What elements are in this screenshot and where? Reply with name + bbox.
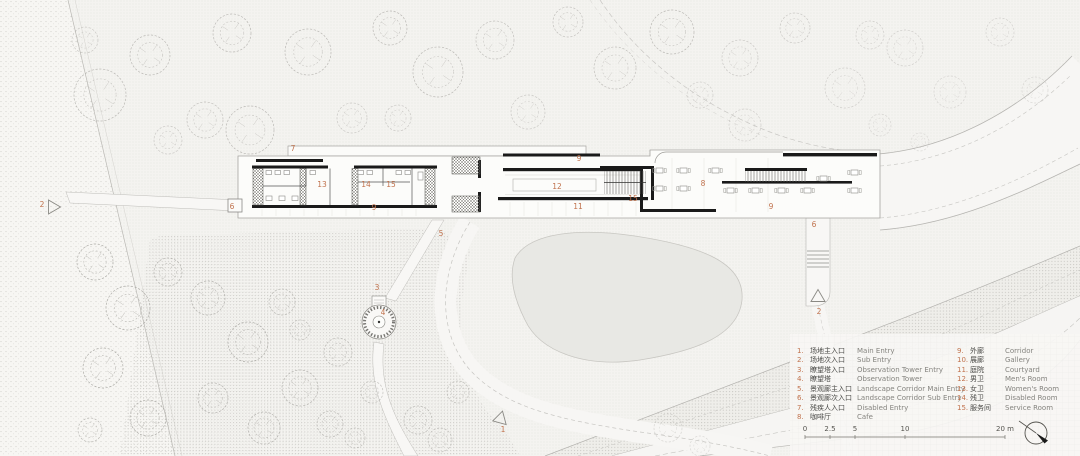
cafe-table <box>724 188 737 193</box>
cafe-table <box>801 188 814 193</box>
legend-zh: 景观廊次入口 <box>810 394 857 403</box>
legend-item: 8.咖啡厅Cafe <box>797 413 957 422</box>
legend-zh: 瞭望塔 <box>810 375 857 384</box>
legend-en: Gallery <box>1005 356 1030 365</box>
legend-zh: 男卫 <box>970 375 1005 384</box>
legend-en: Women's Room <box>1005 385 1059 394</box>
cafe-table <box>653 168 666 173</box>
legend-zh: 瞭望塔入口 <box>810 366 857 375</box>
cafe-table <box>749 188 762 193</box>
legend-zh: 女卫 <box>970 385 1005 394</box>
plan-number-label: 14 <box>361 180 371 189</box>
legend-en: Observation Tower <box>857 375 922 384</box>
legend-zh: 展廊 <box>970 356 1005 365</box>
legend-no: 13. <box>957 385 970 394</box>
plan-number-label: 12 <box>552 182 562 191</box>
plan-number-label: 8 <box>701 179 706 188</box>
plan-number-label: 15 <box>386 180 396 189</box>
plan-number-label: 1 <box>501 425 506 434</box>
legend-en: Courtyard <box>1005 366 1040 375</box>
cafe-table <box>848 170 861 175</box>
plan-number-label: 9 <box>372 203 377 212</box>
scale-label: 10 <box>901 425 910 433</box>
legend-en: Corridor <box>1005 347 1033 356</box>
legend-en: Sub Entry <box>857 356 891 365</box>
legend-column-right: 9.外廊Corridor10.展廊Gallery11.庭院Courtyard12… <box>957 347 1059 423</box>
legend-zh: 残疾人入口 <box>810 404 857 413</box>
legend-item: 4.瞭望塔Observation Tower <box>797 375 957 384</box>
tower-center <box>378 321 380 323</box>
cafe-table <box>775 188 788 193</box>
legend-zh: 景观廊主入口 <box>810 385 857 394</box>
legend-item: 7.残疾人入口Disabled Entry <box>797 404 957 413</box>
legend-column-left: 1.场地主入口Main Entry2.场地次入口Sub Entry3.瞭望塔入口… <box>797 347 957 423</box>
scale-label: 5 <box>853 425 857 433</box>
legend-no: 12. <box>957 375 970 384</box>
plan-number-label: 15 <box>628 194 638 203</box>
legend-en: Observation Tower Entry <box>857 366 943 375</box>
legend-no: 3. <box>797 366 810 375</box>
legend-en: Landscape Corridor Sub Entry <box>857 394 962 403</box>
legend-zh: 庭院 <box>970 366 1005 375</box>
cafe-table <box>817 176 830 181</box>
legend: 1.场地主入口Main Entry2.场地次入口Sub Entry3.瞭望塔入口… <box>797 347 1059 423</box>
legend-no: 7. <box>797 404 810 413</box>
legend-no: 14. <box>957 394 970 403</box>
legend-no: 6. <box>797 394 810 403</box>
legend-item: 6.景观廊次入口Landscape Corridor Sub Entry <box>797 394 957 403</box>
legend-no: 11. <box>957 366 970 375</box>
legend-item: 2.场地次入口Sub Entry <box>797 356 957 365</box>
legend-en: Service Room <box>1005 404 1053 413</box>
plan-number-label: 13 <box>317 180 327 189</box>
legend-no: 4. <box>797 375 810 384</box>
cafe-table <box>848 188 861 193</box>
bar-counter <box>745 171 807 182</box>
plan-number-label: 6 <box>230 202 235 211</box>
plan-number-label: 3 <box>375 283 380 292</box>
east-walkway <box>806 218 830 306</box>
plan-number-label: 11 <box>573 202 583 211</box>
plan-number-label: 2 <box>817 307 822 316</box>
scale-label: 20 m <box>996 425 1014 433</box>
legend-no: 15. <box>957 404 970 413</box>
scale-label: 0 <box>803 425 807 433</box>
legend-no: 1. <box>797 347 810 356</box>
plan-number-label: 9 <box>577 154 582 163</box>
legend-en: Men's Room <box>1005 375 1048 384</box>
plan-number-label: 7 <box>291 144 296 153</box>
legend-no: 8. <box>797 413 810 422</box>
plan-number-label: 2 <box>40 200 45 209</box>
plan-number-label: 4 <box>381 308 386 317</box>
legend-item: 10.展廊Gallery <box>957 356 1059 365</box>
legend-zh: 场地次入口 <box>810 356 857 365</box>
legend-en: Main Entry <box>857 347 895 356</box>
legend-no: 10. <box>957 356 970 365</box>
legend-en: Landscape Corridor Main Entry <box>857 385 965 394</box>
legend-zh: 服务间 <box>970 404 1005 413</box>
plan-number-label: 6 <box>812 220 817 229</box>
legend-item: 14.残卫Disabled Room <box>957 394 1059 403</box>
legend-en: Disabled Entry <box>857 404 908 413</box>
plan-number-label: 5 <box>439 229 444 238</box>
legend-item: 11.庭院Courtyard <box>957 366 1059 375</box>
legend-item: 15.服务间Service Room <box>957 404 1059 413</box>
legend-en: Disabled Room <box>1005 394 1058 403</box>
cafe-table <box>653 186 666 191</box>
legend-item: 5.景观廊主入口Landscape Corridor Main Entry <box>797 385 957 394</box>
legend-no: 2. <box>797 356 810 365</box>
scale-label: 2.5 <box>824 425 835 433</box>
cafe-table <box>677 186 690 191</box>
plan-number-label: 9 <box>769 202 774 211</box>
legend-no: 9. <box>957 347 970 356</box>
legend-en: Cafe <box>857 413 873 422</box>
legend-no: 5. <box>797 385 810 394</box>
cafe-table <box>709 168 722 173</box>
legend-item: 13.女卫Women's Room <box>957 385 1059 394</box>
legend-item: 12.男卫Men's Room <box>957 375 1059 384</box>
cafe-table <box>677 168 690 173</box>
legend-zh: 残卫 <box>970 394 1005 403</box>
legend-item: 3.瞭望塔入口Observation Tower Entry <box>797 366 957 375</box>
legend-zh: 咖啡厅 <box>810 413 857 422</box>
